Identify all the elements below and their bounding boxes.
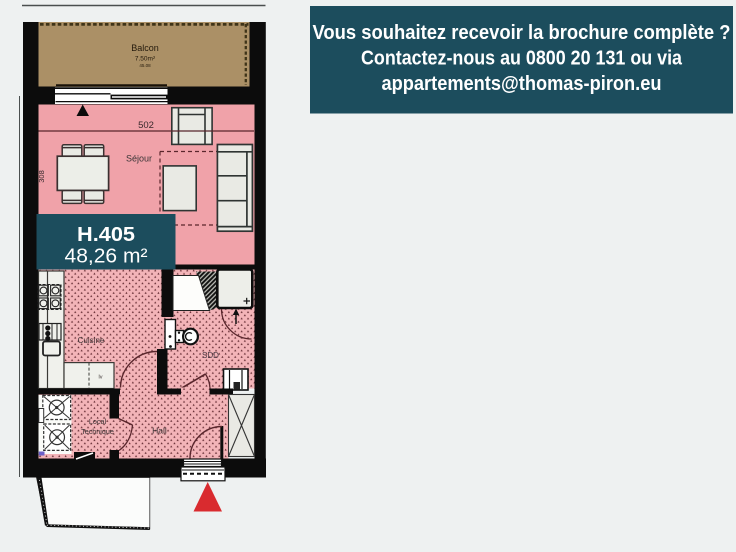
svg-text:Balcon: Balcon bbox=[131, 43, 159, 53]
svg-text:Local: Local bbox=[89, 417, 107, 426]
svg-text:308: 308 bbox=[37, 170, 46, 183]
svg-text:48,26 m²: 48,26 m² bbox=[65, 246, 148, 268]
svg-text:appartements@thomas-piron.eu: appartements@thomas-piron.eu bbox=[382, 73, 662, 95]
svg-text:Cuisine: Cuisine bbox=[78, 336, 105, 345]
svg-text:Séjour: Séjour bbox=[126, 154, 152, 164]
svg-text:Contactez-nous au 0800 20 131: Contactez-nous au 0800 20 131 ou via bbox=[361, 48, 683, 70]
svg-text:Technique: Technique bbox=[81, 427, 114, 436]
svg-text:lv: lv bbox=[99, 375, 103, 381]
svg-text:502: 502 bbox=[138, 120, 154, 131]
svg-text:Vous souhaitez recevoir la bro: Vous souhaitez recevoir la brochure comp… bbox=[313, 22, 731, 44]
svg-text:H.405: H.405 bbox=[77, 223, 135, 246]
svg-text:SDD: SDD bbox=[202, 351, 219, 360]
svg-text:7.50m²: 7.50m² bbox=[135, 56, 156, 63]
svg-text:Hall: Hall bbox=[152, 426, 167, 436]
svg-text:45.08: 45.08 bbox=[139, 63, 151, 68]
